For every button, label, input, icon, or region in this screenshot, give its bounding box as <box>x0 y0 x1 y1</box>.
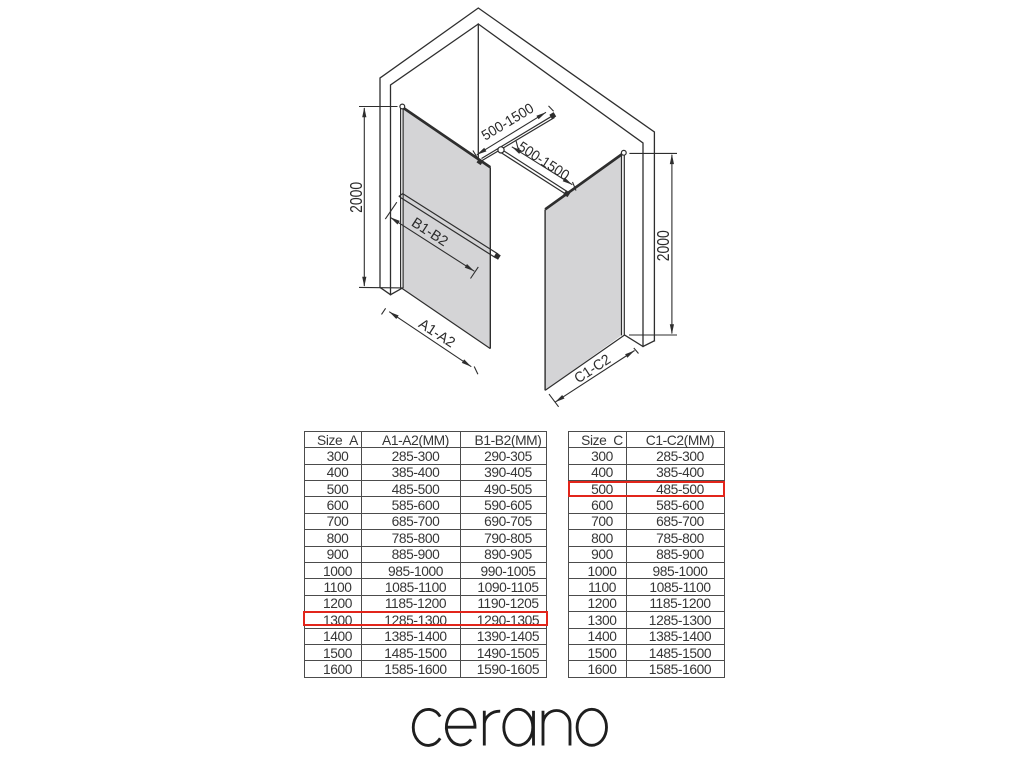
svg-text:500-1500: 500-1500 <box>479 101 537 145</box>
svg-text:2000: 2000 <box>346 182 366 213</box>
svg-text:500-1500: 500-1500 <box>515 139 572 184</box>
svg-text:2000: 2000 <box>653 230 673 261</box>
